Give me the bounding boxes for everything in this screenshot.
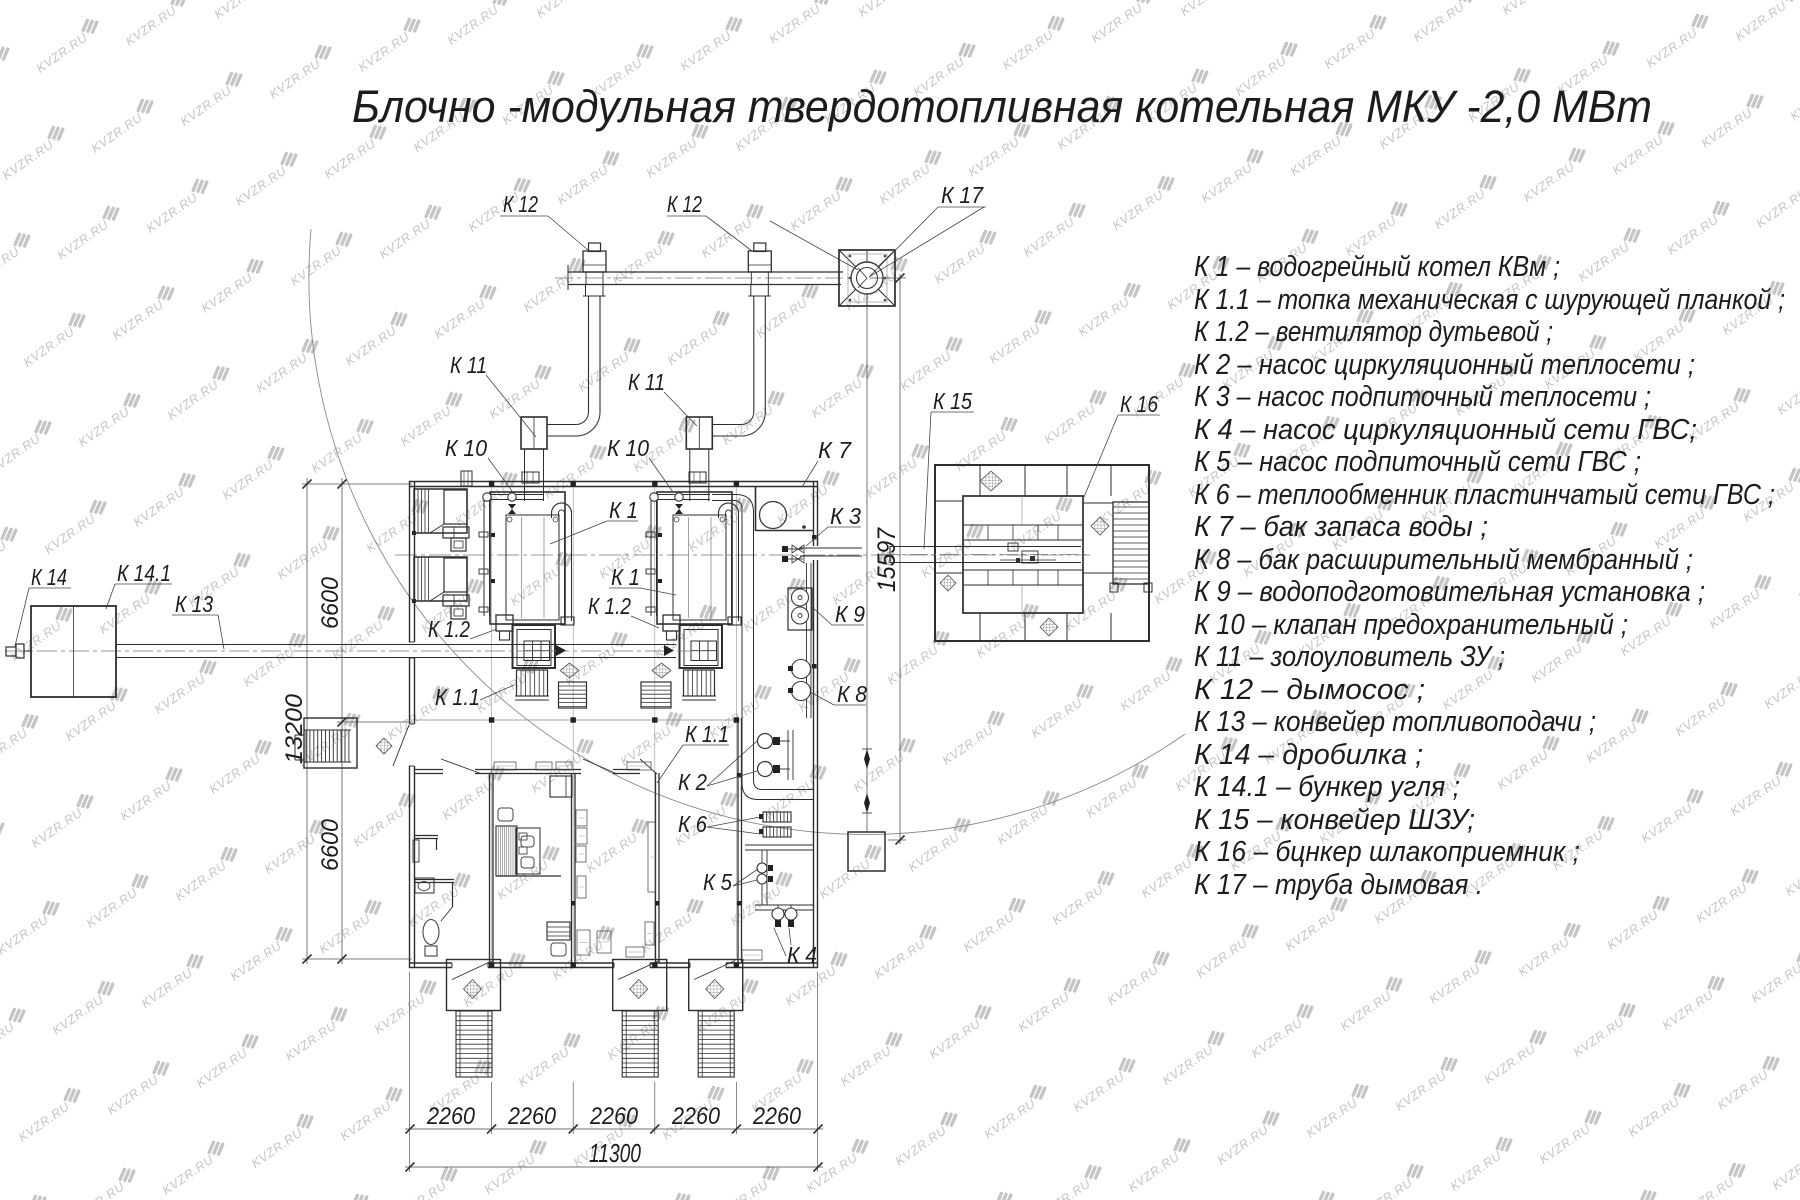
svg-text:К 1: К 1	[609, 497, 638, 523]
svg-text:К 1: К 1	[611, 564, 640, 590]
svg-text:К 16: К 16	[1120, 391, 1158, 417]
svg-text:К 6 – теплообменник пластин: К 6 – теплообменник пластинчатый сети ГВ…	[1194, 479, 1775, 511]
svg-text:К 2 – насос циркуляционный: К 2 – насос циркуляционный теплосети ;	[1194, 349, 1695, 381]
svg-text:2260: 2260	[426, 1103, 475, 1130]
svg-text:К 10: К 10	[607, 435, 649, 461]
svg-text:К 12: К 12	[667, 191, 702, 217]
svg-text:К 3 – насос подпиточный теп: К 3 – насос подпиточный теплосети ;	[1194, 381, 1651, 413]
svg-text:К 9 – водоподготовительная: К 9 – водоподготовительная установка ;	[1194, 576, 1705, 608]
svg-text:К 14 – дробилка ;: К 14 – дробилка ;	[1194, 739, 1423, 771]
svg-text:6600: 6600	[317, 576, 344, 629]
svg-text:15597: 15597	[873, 527, 901, 592]
svg-text:К 7: К 7	[818, 437, 852, 463]
svg-text:К 12 – дымосос ;: К 12 – дымосос ;	[1194, 674, 1425, 706]
svg-text:К 11: К 11	[450, 352, 487, 378]
svg-text:К 7 – бак запаса воды ;: К 7 – бак запаса воды ;	[1194, 511, 1488, 543]
svg-text:К 6: К 6	[678, 811, 707, 837]
svg-text:К 13 – конвейер топливопода: К 13 – конвейер топливоподачи ;	[1194, 706, 1596, 738]
svg-text:К 16 – бцнкер шлакоприемник: К 16 – бцнкер шлакоприемник ;	[1194, 836, 1580, 868]
svg-text:11300: 11300	[589, 1138, 641, 1168]
svg-text:К 1.1: К 1.1	[685, 721, 729, 747]
svg-text:К 4: К 4	[787, 942, 817, 968]
svg-text:К 1 – водогрейный котел КВм: К 1 – водогрейный котел КВм ;	[1194, 251, 1560, 283]
svg-text:К 1.1 – топка механическая: К 1.1 – топка механическая с шурующей пл…	[1194, 284, 1785, 316]
svg-text:К 1.2: К 1.2	[428, 616, 470, 642]
svg-text:К 11 – золоуловитель ЗУ ;: К 11 – золоуловитель ЗУ ;	[1194, 641, 1505, 673]
svg-text:6600: 6600	[317, 818, 344, 871]
svg-text:К 5: К 5	[703, 869, 732, 895]
svg-text:2260: 2260	[671, 1103, 720, 1130]
svg-text:К 15 – конвейер ШЗУ;: К 15 – конвейер ШЗУ;	[1194, 804, 1475, 836]
svg-text:К 1.1: К 1.1	[435, 684, 480, 710]
svg-text:К 1.2: К 1.2	[588, 593, 631, 619]
svg-text:К 3: К 3	[830, 503, 861, 529]
svg-text:К 8 – бак расширительный ме: К 8 – бак расширительный мембранный ;	[1194, 544, 1693, 576]
svg-text:2260: 2260	[752, 1103, 801, 1130]
svg-text:К 9: К 9	[835, 601, 865, 627]
svg-text:К 5 – насос подпиточный сет: К 5 – насос подпиточный сети ГВС ;	[1194, 446, 1641, 478]
svg-text:К 2: К 2	[678, 769, 707, 795]
svg-text:К 10: К 10	[445, 435, 487, 461]
svg-text:К 15: К 15	[933, 388, 972, 414]
svg-text:К 14: К 14	[31, 564, 67, 590]
svg-text:К 10 – клапан предохранител: К 10 – клапан предохранительный ;	[1194, 609, 1628, 641]
svg-text:Блочно -модульная твердотоплив: Блочно -модульная твердотопливная котель…	[352, 81, 1652, 132]
svg-text:К 4 – насос циркуляционный: К 4 – насос циркуляционный сети ГВС;	[1194, 414, 1697, 446]
svg-text:К 11: К 11	[628, 369, 665, 395]
svg-text:2260: 2260	[507, 1103, 556, 1130]
svg-text:К 14.1: К 14.1	[117, 560, 171, 586]
svg-text:2260: 2260	[589, 1103, 638, 1130]
svg-text:К 17: К 17	[941, 182, 984, 208]
svg-text:К 8: К 8	[837, 681, 867, 707]
svg-text:К 12: К 12	[503, 191, 538, 217]
svg-text:К 1.2 – вентилятор дутьевой: К 1.2 – вентилятор дутьевой ;	[1194, 316, 1553, 348]
svg-text:К 13: К 13	[175, 591, 213, 617]
svg-text:К 17 – труба дымовая .: К 17 – труба дымовая .	[1194, 869, 1483, 901]
svg-text:К 14.1 – бункер угля ;: К 14.1 – бункер угля ;	[1194, 771, 1460, 803]
